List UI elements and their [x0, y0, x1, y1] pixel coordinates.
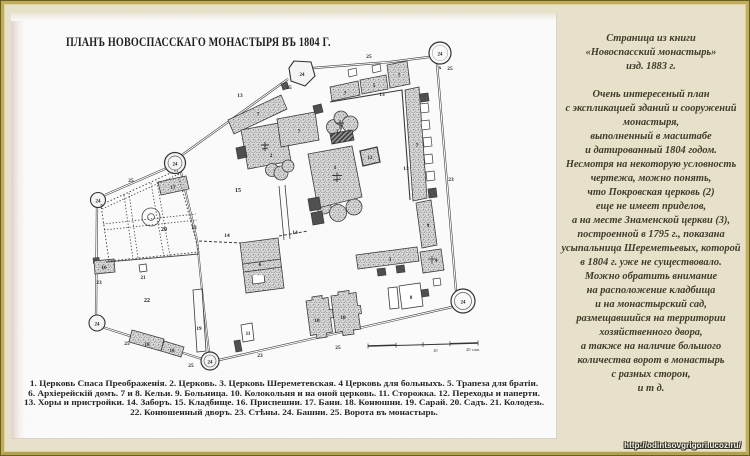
svg-text:17: 17: [170, 185, 176, 191]
svg-text:9: 9: [427, 223, 430, 229]
svg-text:13: 13: [191, 225, 197, 231]
svg-text:24: 24: [95, 323, 100, 328]
svg-text:24: 24: [208, 361, 213, 366]
svg-text:7: 7: [344, 91, 347, 97]
svg-text:24: 24: [461, 301, 466, 306]
svg-text:23: 23: [448, 177, 454, 183]
svg-text:7: 7: [257, 112, 260, 118]
svg-text:22: 22: [144, 298, 150, 304]
svg-text:25: 25: [447, 66, 453, 72]
svg-text:20: 20: [161, 227, 167, 233]
svg-text:6: 6: [259, 262, 262, 268]
svg-text:13: 13: [379, 92, 385, 98]
svg-text:7: 7: [298, 129, 301, 135]
svg-text:3: 3: [389, 257, 392, 263]
svg-text:24: 24: [300, 73, 305, 78]
svg-text:21: 21: [141, 276, 147, 281]
svg-text:2: 2: [270, 153, 273, 159]
svg-text:10: 10: [433, 348, 438, 353]
svg-text:24: 24: [96, 200, 101, 205]
svg-text:25: 25: [188, 363, 194, 369]
svg-text:25: 25: [366, 54, 372, 60]
svg-text:24: 24: [173, 163, 178, 168]
svg-text:25: 25: [128, 178, 134, 184]
svg-text:10: 10: [340, 315, 346, 321]
svg-text:10: 10: [314, 318, 320, 324]
svg-text:20 саж.: 20 саж.: [466, 347, 480, 352]
svg-text:11: 11: [246, 332, 251, 337]
svg-text:12: 12: [368, 156, 374, 161]
svg-text:x: x: [439, 65, 442, 71]
svg-text:24: 24: [438, 53, 443, 58]
svg-text:23: 23: [96, 280, 102, 286]
svg-text:7: 7: [398, 73, 401, 79]
svg-text:7: 7: [416, 143, 419, 149]
svg-text:16: 16: [101, 265, 107, 271]
svg-text:13: 13: [237, 93, 243, 99]
svg-text:5: 5: [373, 83, 376, 89]
svg-text:18: 18: [144, 342, 150, 348]
svg-text:15: 15: [235, 188, 241, 194]
svg-text:25: 25: [286, 85, 292, 91]
svg-text:14: 14: [224, 233, 230, 239]
svg-text:14: 14: [292, 230, 298, 236]
svg-text:19: 19: [196, 326, 202, 332]
svg-text:23: 23: [257, 353, 263, 359]
svg-text:8: 8: [410, 295, 413, 301]
svg-text:13: 13: [403, 166, 409, 172]
svg-text:25: 25: [124, 341, 130, 347]
svg-text:16: 16: [170, 349, 176, 354]
svg-text:1: 1: [334, 165, 337, 171]
svg-text:25: 25: [335, 345, 341, 351]
